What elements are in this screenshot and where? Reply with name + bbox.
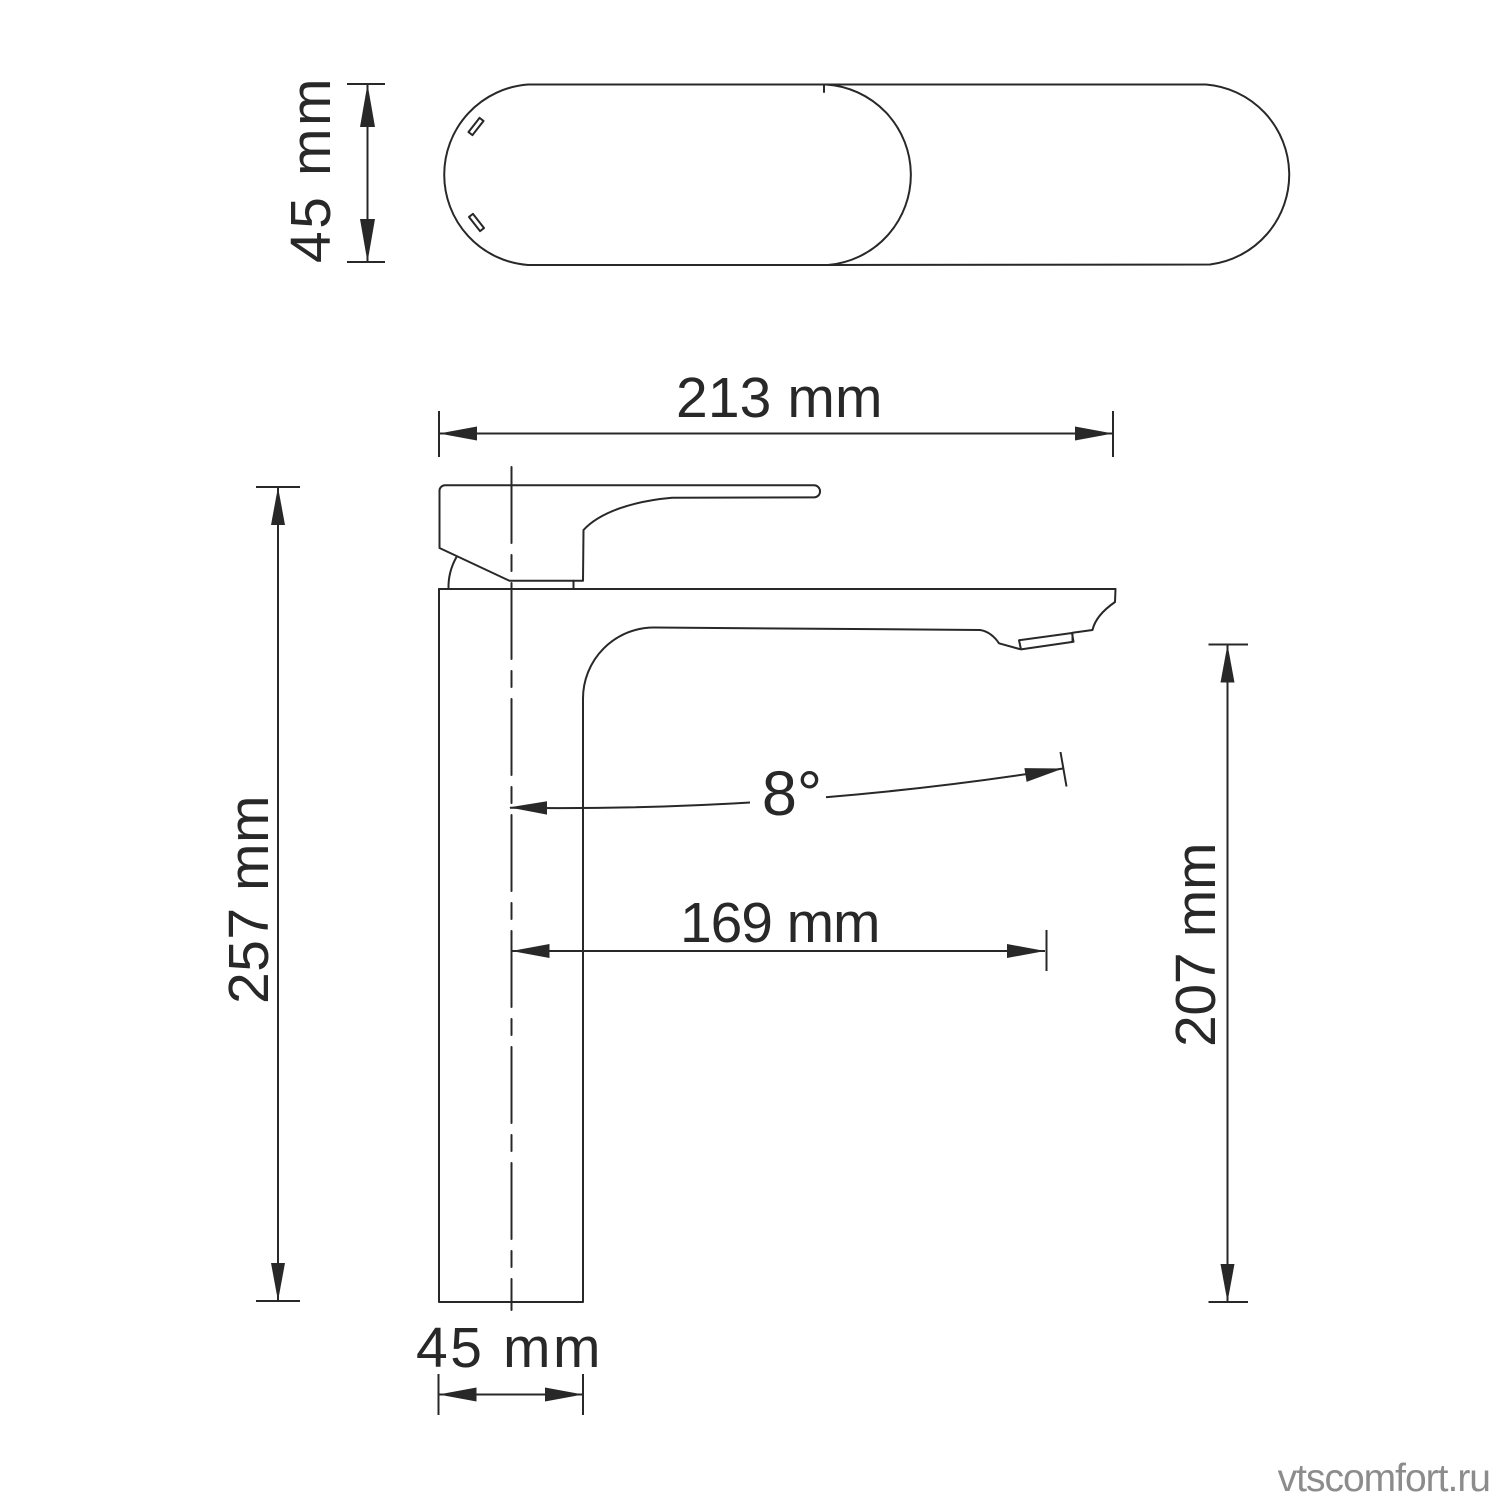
svg-text:169 mm: 169 mm	[680, 891, 880, 955]
svg-text:45 mm: 45 mm	[416, 1316, 600, 1380]
svg-text:213 mm: 213 mm	[676, 366, 882, 430]
svg-text:45 mm: 45 mm	[279, 79, 343, 263]
svg-text:vtscomfort.ru: vtscomfort.ru	[1278, 1457, 1490, 1500]
svg-text:257 mm: 257 mm	[217, 796, 281, 1004]
svg-text:8°: 8°	[762, 759, 822, 829]
svg-text:207 mm: 207 mm	[1164, 843, 1228, 1047]
